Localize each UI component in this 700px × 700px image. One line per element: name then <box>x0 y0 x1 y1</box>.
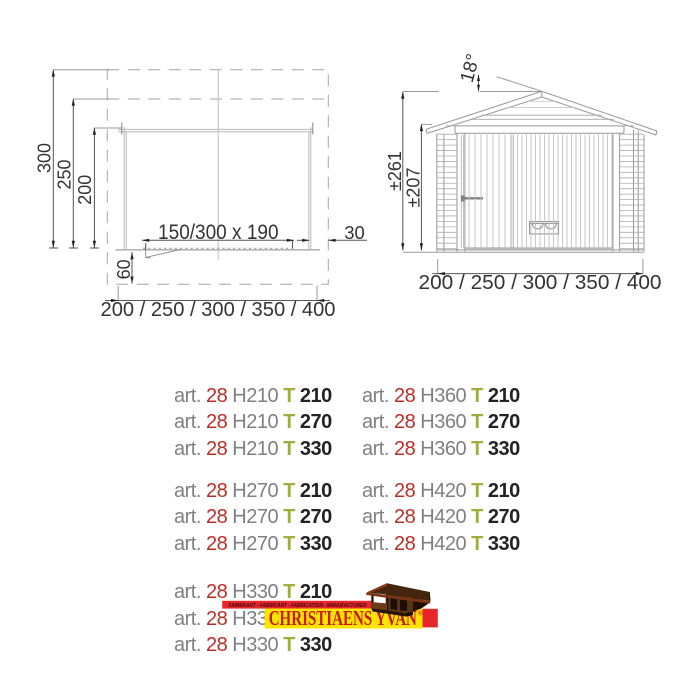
svg-text:®: ® <box>418 609 424 617</box>
